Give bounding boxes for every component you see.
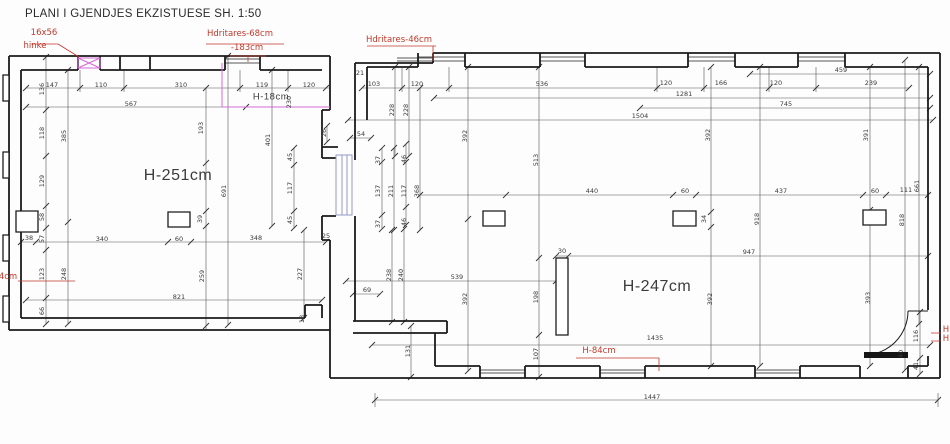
dim-label: 25 (322, 233, 330, 240)
dim-label: 392 (707, 293, 714, 305)
dim-label: 120 (303, 82, 315, 89)
dim-label: 60 (175, 236, 183, 243)
dim-label: 21 (356, 70, 364, 77)
dim-label: 211 (388, 185, 395, 197)
dim-label: 60 (681, 188, 689, 195)
dim-label: 58 (39, 213, 46, 221)
dim-label: 661 (914, 180, 921, 192)
dim-label: 513 (533, 154, 540, 166)
dim-label: 46 (401, 155, 408, 163)
dim-label: 37 (375, 220, 382, 228)
red-annotation: 16x56 (31, 29, 58, 38)
dim-label: 310 (175, 82, 187, 89)
dim-label: 918 (754, 213, 761, 225)
columns-and-pilasters (3, 75, 886, 335)
dim-label: 57 (39, 235, 46, 243)
dim-label: 392 (705, 129, 712, 141)
room-height-label: H-251cm (144, 168, 212, 184)
dim-label: 166 (715, 80, 727, 87)
dimension-lines (21, 56, 938, 407)
dim-label: 103 (368, 81, 380, 88)
dim-label: 60 (871, 188, 879, 195)
dim-label: 259 (199, 270, 206, 282)
dim-label: 691 (221, 185, 228, 197)
dim-label: 116 (913, 330, 920, 342)
dim-label: 745 (780, 101, 792, 108)
floor-plan-drawing (0, 0, 950, 444)
dim-label: 45 (287, 216, 294, 224)
blue-door-element (336, 155, 352, 215)
red-leader-lines (18, 44, 941, 371)
red-annotation: hinke (24, 42, 47, 51)
dim-label: 111 (900, 187, 912, 194)
dim-label: 30 (558, 248, 566, 255)
dim-label: 37 (375, 156, 382, 164)
dim-label: 459 (835, 67, 847, 74)
dim-label: 198 (533, 291, 540, 303)
dim-label: 248 (61, 268, 68, 280)
dim-label: 40 (898, 350, 905, 358)
dim-label: 136 (39, 83, 46, 95)
dim-label: 227 (297, 268, 304, 280)
dim-label: 137 (375, 185, 382, 197)
dim-label: 567 (125, 101, 137, 108)
dim-label: 368 (414, 185, 421, 197)
dim-label: 66 (39, 307, 46, 315)
tick-marks (18, 53, 941, 403)
dim-label: 238 (386, 269, 393, 281)
dim-label: 340 (96, 236, 108, 243)
dim-label: 539 (451, 274, 463, 281)
dim-label: 34 (701, 215, 708, 223)
dim-label: 228 (389, 104, 396, 116)
dim-label: 26 (321, 129, 328, 137)
dim-label: 1281 (676, 91, 693, 98)
walls (9, 53, 940, 378)
dim-label: 401 (265, 134, 272, 146)
dim-label: 120 (770, 80, 782, 87)
dim-label: 240 (398, 269, 405, 281)
dim-label: 437 (775, 188, 787, 195)
dim-label: 1447 (644, 394, 661, 401)
dim-label: 117 (401, 185, 408, 197)
dim-label: 818 (899, 214, 906, 226)
dim-label: 385 (61, 130, 68, 142)
page-title: PLANI I GJENDJES EKZISTUESE SH. 1:50 (25, 8, 261, 20)
red-annotation: Hdritares-68cm (207, 30, 273, 39)
dim-label: 129 (39, 175, 46, 187)
red-annotation: H-84cm (582, 347, 615, 356)
dim-label: 131 (405, 345, 412, 357)
dim-label: 38 (25, 235, 33, 242)
dim-label: 39 (197, 215, 204, 223)
dim-label: 821 (173, 294, 185, 301)
dim-label: 391 (863, 129, 870, 141)
floor-plan-canvas: PLANI I GJENDJES EKZISTUESE SH. 1:50 147… (0, 0, 950, 444)
dim-label: 393 (865, 292, 872, 304)
dim-label: 18 (299, 315, 306, 323)
dim-label: 118 (39, 127, 46, 139)
dim-label: 1504 (632, 113, 649, 120)
dim-label: 947 (743, 249, 755, 256)
dim-label: 1435 (647, 335, 664, 342)
dim-label: 348 (250, 235, 262, 242)
room-height-label: H-18cm (253, 92, 289, 102)
dim-label: 392 (462, 130, 469, 142)
room-height-label: H-247cm (623, 279, 691, 295)
dim-label: 41 (913, 362, 920, 370)
dim-label: 69 (363, 287, 371, 294)
dim-label: 120 (660, 80, 672, 87)
dim-label: 107 (533, 348, 540, 360)
dim-label: 46 (401, 218, 408, 226)
red-annotation: 4cm (0, 273, 17, 282)
red-annotation: H (943, 335, 949, 344)
dim-label: 54 (357, 131, 365, 138)
dim-label: 117 (287, 182, 294, 194)
dim-label: 45 (287, 153, 294, 161)
dim-label: 440 (586, 188, 598, 195)
dim-label: 392 (462, 293, 469, 305)
dim-label: 228 (403, 104, 410, 116)
red-annotation: -183cm (231, 44, 263, 53)
dim-label: 239 (865, 80, 877, 87)
dim-label: 123 (39, 268, 46, 280)
dim-label: 147 (46, 82, 58, 89)
dim-label: 536 (536, 81, 548, 88)
dim-label: 120 (411, 81, 423, 88)
red-annotation: Hdritares-46cm (366, 36, 432, 45)
dim-label: 119 (256, 82, 268, 89)
dim-label: 193 (198, 122, 205, 134)
dim-label: 110 (95, 82, 107, 89)
